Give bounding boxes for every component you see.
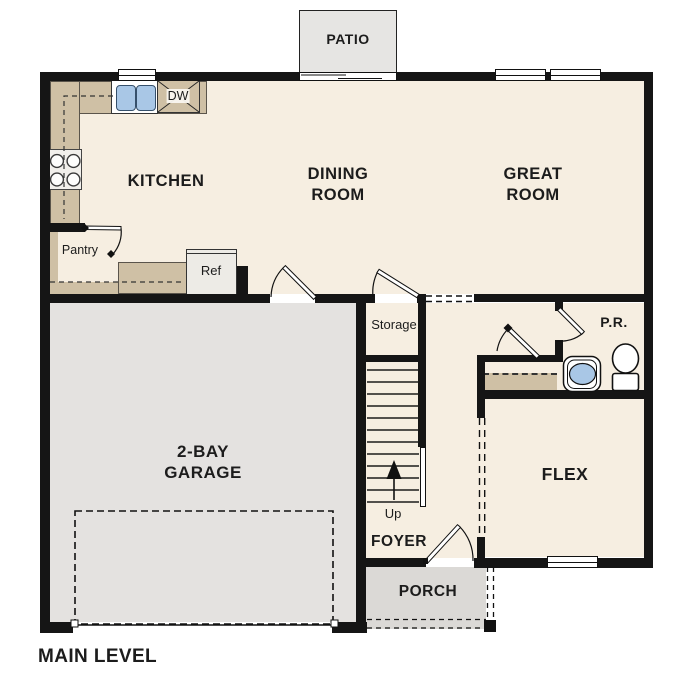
sink-basin-left: [116, 85, 136, 111]
wall: [332, 622, 367, 633]
wall: [363, 355, 426, 362]
dishwasher-label: DW: [167, 89, 190, 103]
wall: [474, 558, 548, 568]
dining-room-label-line2: ROOM: [311, 186, 364, 205]
great-room-window-2: [550, 69, 601, 81]
great-room-window-1: [495, 69, 546, 81]
refrigerator-top-line: [187, 253, 236, 254]
stair-railing: [420, 447, 426, 507]
wall: [366, 294, 375, 303]
wall: [315, 294, 366, 303]
kitchen-window: [118, 69, 156, 81]
wall: [483, 355, 559, 362]
kitchen-counter-bottom: [118, 262, 187, 294]
wall: [477, 537, 485, 559]
kitchen-label: KITCHEN: [128, 172, 205, 191]
pantry-shelf-left: [50, 230, 58, 283]
stove: [46, 149, 82, 190]
wall: [40, 72, 50, 632]
porch-label: PORCH: [399, 583, 457, 601]
plan-title: MAIN LEVEL: [38, 646, 157, 668]
cased-opening-hall: [426, 296, 474, 302]
flex-label: FLEX: [542, 464, 589, 485]
wall: [477, 355, 485, 418]
sink-basin-right: [136, 85, 156, 111]
patio-label: PATIO: [326, 31, 369, 47]
wall: [417, 294, 426, 303]
wall: [418, 303, 426, 447]
wall: [644, 72, 653, 568]
wall: [474, 294, 653, 302]
wall: [555, 302, 563, 311]
wall: [356, 303, 366, 633]
storage-label: Storage: [371, 317, 417, 332]
kitchen-sink: [111, 80, 158, 114]
wall: [40, 223, 85, 232]
foyer-label: FOYER: [371, 533, 427, 551]
dining-room-label-line1: DINING: [308, 165, 369, 184]
flex-window: [547, 556, 598, 568]
wall: [356, 558, 426, 567]
pantry-shelf-bottom: [48, 282, 118, 294]
refrigerator-label: Ref: [201, 263, 221, 278]
wall: [40, 622, 73, 633]
powder-room-label: P.R.: [600, 314, 627, 330]
stairs-up-label: Up: [385, 506, 402, 521]
pantry-label: Pantry: [62, 243, 98, 257]
garage-label-line1: 2-BAY: [177, 442, 229, 462]
floor-plan: PATIO KITCHEN DINING ROOM GREAT ROOM 2-B…: [0, 0, 687, 687]
wall: [237, 266, 248, 295]
garage-label-line2: GARAGE: [164, 463, 242, 483]
wall: [477, 390, 653, 399]
wall: [40, 72, 300, 81]
great-room-label-line2: ROOM: [506, 186, 559, 205]
patio-sliding-door: [299, 72, 397, 81]
coat-closet-shelf: [483, 373, 557, 391]
wall: [40, 294, 270, 303]
wall: [598, 558, 653, 568]
great-room-label-line1: GREAT: [503, 165, 562, 184]
